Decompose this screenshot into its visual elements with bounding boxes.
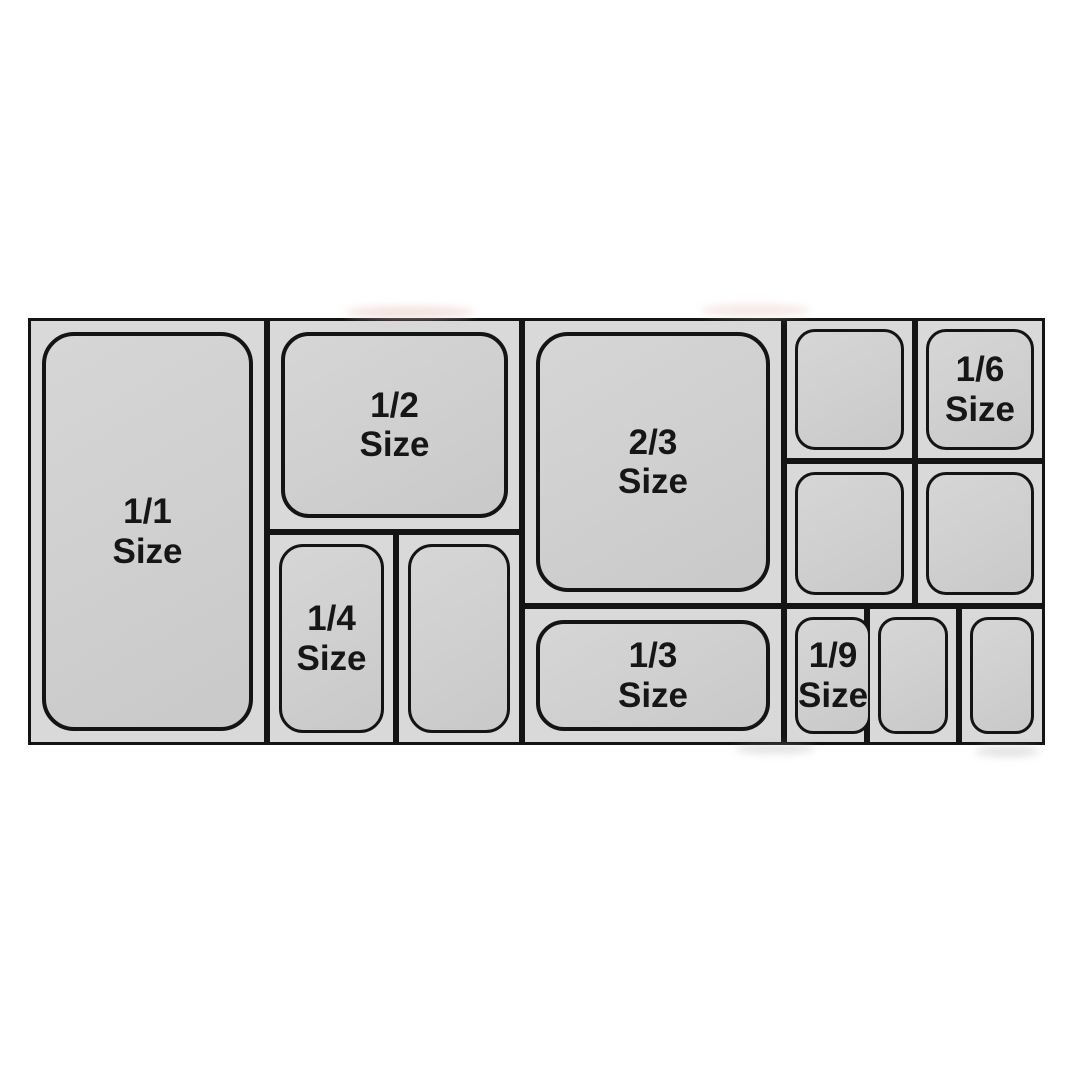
pan-cell-sixth-size-unlabeled-top xyxy=(787,321,912,458)
pan-cell-third-size: 1/3 Size xyxy=(525,609,781,742)
pan-label-half-size: 1/2 Size xyxy=(359,386,429,464)
pan-label-ninth-size: 1/9 Size xyxy=(798,636,868,714)
photo-artifact-shadow xyxy=(735,744,815,754)
pan-cell-full-size: 1/1 Size xyxy=(31,321,264,742)
pan-quarter-size-labeled: 1/4 Size xyxy=(279,544,384,733)
pan-label-quarter-size: 1/4 Size xyxy=(296,599,366,677)
pan-sixth-size-unlabeled-mid-left xyxy=(795,472,904,595)
pan-cell-half-size: 1/2 Size xyxy=(270,321,519,529)
pan-third-size: 1/3 Size xyxy=(536,620,770,731)
pan-label-two-thirds-size: 2/3 Size xyxy=(618,423,688,501)
pan-label-sixth-size: 1/6 Size xyxy=(945,350,1015,428)
pan-cell-two-thirds-size: 2/3 Size xyxy=(525,321,781,603)
pan-ninth-size-labeled: 1/9 Size xyxy=(795,617,871,734)
pan-cell-ninth-size-labeled: 1/9 Size xyxy=(787,609,864,742)
pan-sixth-size-unlabeled-top xyxy=(795,329,904,450)
pan-cell-sixth-size-unlabeled-mid-right xyxy=(918,464,1042,603)
pan-cell-quarter-size-unlabeled xyxy=(399,535,519,742)
photo-artifact-smudge xyxy=(700,304,810,317)
pan-cell-ninth-size-unlabeled-mid xyxy=(870,609,956,742)
pan-quarter-size-unlabeled xyxy=(408,544,510,733)
page-canvas: 1/1 Size 1/2 Size 1/4 Size 2/3 Size xyxy=(0,0,1080,1080)
pan-sixth-size-labeled: 1/6 Size xyxy=(926,329,1034,450)
pan-ninth-size-unlabeled-mid xyxy=(878,617,948,734)
pan-cell-sixth-size-labeled: 1/6 Size xyxy=(918,321,1042,458)
pan-label-third-size: 1/3 Size xyxy=(618,636,688,714)
gastronorm-pan-size-diagram: 1/1 Size 1/2 Size 1/4 Size 2/3 Size xyxy=(28,318,1045,745)
pan-sixth-size-unlabeled-mid-right xyxy=(926,472,1034,595)
pan-ninth-size-unlabeled-right xyxy=(970,617,1034,734)
pan-label-full-size: 1/1 Size xyxy=(112,492,182,570)
pan-half-size: 1/2 Size xyxy=(281,332,508,518)
pan-cell-sixth-size-unlabeled-mid-left xyxy=(787,464,912,603)
photo-artifact-shadow xyxy=(975,746,1040,757)
pan-cell-ninth-size-unlabeled-right xyxy=(962,609,1042,742)
pan-two-thirds-size: 2/3 Size xyxy=(536,332,770,592)
pan-cell-quarter-size-labeled: 1/4 Size xyxy=(270,535,393,742)
pan-full-size: 1/1 Size xyxy=(42,332,253,731)
